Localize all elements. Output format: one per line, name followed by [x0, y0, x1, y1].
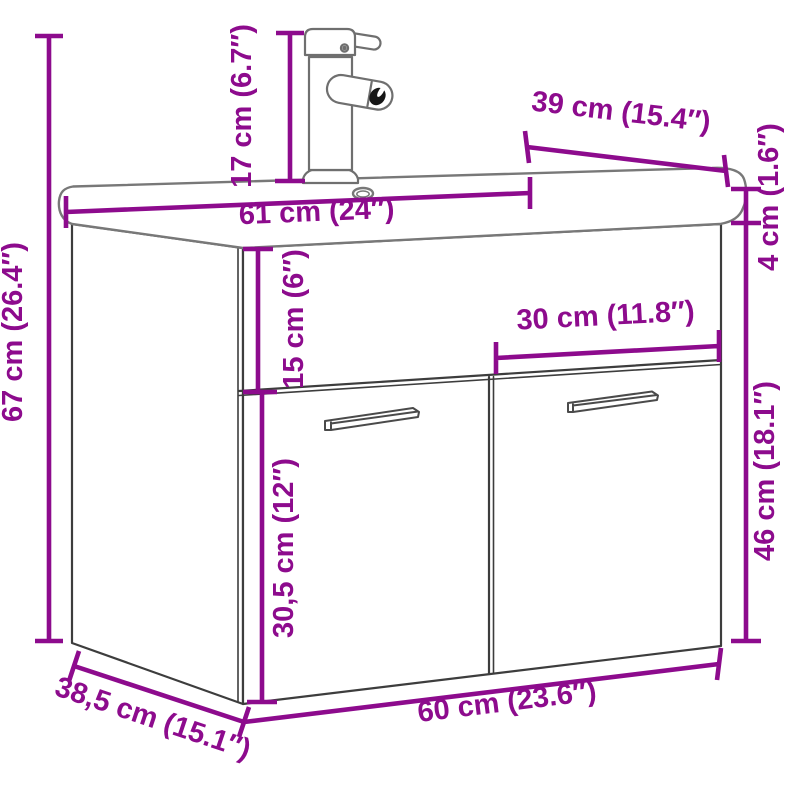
- cabinet: [72, 224, 721, 704]
- cabinet-front-panel: [243, 224, 721, 704]
- dimension-label: 60 cm (23.6″): [416, 675, 598, 729]
- dimension-label: 4 cm (1.6″): [753, 123, 785, 271]
- faucet-base: [303, 170, 358, 183]
- dimension-label: 15 cm (6″): [278, 249, 310, 389]
- dimension-line: [35, 36, 63, 641]
- dimension-door-height: 46 cm (18.1″): [731, 223, 781, 641]
- vanity-dimension-diagram: 67 cm (26.4″) 17 cm (6.7″) 39 cm (15.4″)…: [0, 0, 800, 800]
- dimension-label: 46 cm (18.1″): [749, 381, 781, 561]
- faucet-column: [309, 57, 352, 170]
- dimension-label: 67 cm (26.4″): [0, 242, 29, 422]
- diagram-canvas: 67 cm (26.4″) 17 cm (6.7″) 39 cm (15.4″)…: [0, 0, 800, 800]
- dimension-total-height: 67 cm (26.4″): [0, 36, 63, 641]
- dimension-label: 39 cm (15.4″): [530, 86, 712, 139]
- dimension-line: [275, 33, 305, 181]
- dimension-label: 61 cm (24″): [238, 193, 395, 231]
- dimension-label: 30,5 cm (12″): [268, 458, 300, 638]
- dimension-faucet-height: 17 cm (6.7″): [226, 24, 305, 188]
- faucet-screw-dot: [343, 47, 345, 49]
- faucet: [303, 29, 395, 183]
- cabinet-left-panel: [72, 224, 243, 704]
- dimension-label: 17 cm (6.7″): [226, 24, 258, 188]
